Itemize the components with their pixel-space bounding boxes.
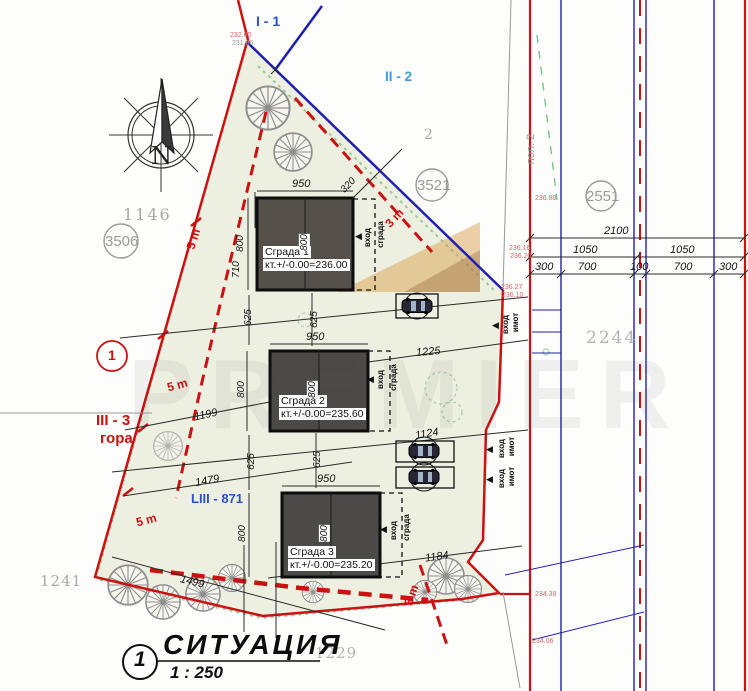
entrance-label-sgrada-b3: сграда bbox=[402, 514, 411, 541]
building-3-elevation: кт.+/-0.00=235.20 bbox=[288, 559, 375, 571]
entrance-label-sgrada-b1: сграда bbox=[376, 221, 385, 248]
spot-elevation: 236.27 bbox=[501, 284, 522, 291]
parcel-number-2551: 2551 bbox=[586, 188, 619, 205]
dim-road-seg-300b: 300 bbox=[719, 261, 737, 273]
spot-elevation: 236.20 bbox=[510, 253, 531, 260]
dim-b1-height-mid: 800 bbox=[299, 234, 310, 251]
dim-b3-width: 950 bbox=[317, 473, 335, 485]
dim-road-seg-300a: 300 bbox=[535, 261, 553, 273]
parcel-number-1241: 1241 bbox=[40, 572, 82, 590]
watermark-text: PREMIER bbox=[128, 338, 687, 451]
dim-road-1050-right: 1050 bbox=[670, 244, 694, 256]
parcel-number-1146: 1146 bbox=[123, 205, 172, 224]
dim-b3-height-left: 800 bbox=[237, 525, 248, 542]
entrance-label-vhod-g1: вход bbox=[501, 315, 510, 334]
north-letter: N bbox=[151, 142, 172, 170]
spot-elevation: 234.38 bbox=[535, 591, 556, 598]
spot-elevation: 231.86 bbox=[232, 40, 253, 47]
parcel-number-2: 2 bbox=[424, 127, 433, 143]
entrance-label-vhod-g3: вход bbox=[497, 469, 506, 488]
entrance-label-imot-g1: имот bbox=[511, 313, 520, 332]
car-icon bbox=[402, 298, 432, 315]
spot-elevation: 232.60 bbox=[230, 32, 251, 39]
entrance-arrow-icon: ◀ bbox=[486, 475, 493, 485]
dim-road-total: 2100 bbox=[604, 225, 628, 237]
zone-label-liii871: LIII - 871 bbox=[191, 491, 243, 506]
street-label-pol2: пол. 2 bbox=[525, 134, 537, 164]
spot-elevation: 234.06 bbox=[532, 638, 553, 645]
dim-gap12-left: 625 bbox=[243, 309, 254, 326]
entrance-arrow-icon: ◀ bbox=[492, 321, 499, 331]
spot-elevation: 236.88 bbox=[535, 195, 556, 202]
dim-road-seg-100: 100 bbox=[630, 261, 648, 273]
dim-b3-height-mid: 800 bbox=[319, 525, 330, 542]
dim-road-seg-700b: 700 bbox=[674, 261, 692, 273]
zone-label-iii3: III - 3 bbox=[96, 412, 130, 429]
dim-b1-width: 950 bbox=[292, 178, 310, 190]
entrance-arrow-icon: ◀ bbox=[380, 525, 387, 535]
site-plan-canvas: PREMIER I - 1 II - 2 III - 3 гора LIII -… bbox=[0, 0, 748, 691]
entrance-label-vhod-b3: вход bbox=[389, 521, 398, 540]
dim-road-seg-700a: 700 bbox=[578, 261, 596, 273]
dim-b1-710: 710 bbox=[231, 261, 242, 278]
spot-elevation: 236.16 bbox=[509, 245, 530, 252]
drawing-scale: 1 : 250 bbox=[170, 663, 223, 683]
dim-gap12-mid: 625 bbox=[309, 311, 320, 328]
dim-gap23-mid: 625 bbox=[312, 451, 323, 468]
drawing-title: СИТУАЦИЯ bbox=[163, 629, 343, 661]
car-icon bbox=[409, 469, 439, 486]
entrance-label-imot-g3: имот bbox=[507, 467, 516, 486]
zone-label-ii2: II - 2 bbox=[385, 69, 412, 84]
parcel-number-3521: 3521 bbox=[417, 177, 450, 194]
spot-elevation: 236.10 bbox=[502, 292, 523, 299]
compass-rose-icon bbox=[109, 78, 213, 192]
dim-b1-height-left: 800 bbox=[235, 235, 246, 252]
zone-label-i1: I - 1 bbox=[256, 13, 280, 29]
dim-gap23-left: 625 bbox=[246, 453, 257, 470]
building-3-name: Сграда 3 bbox=[288, 546, 336, 558]
parcel-number-3506: 3506 bbox=[105, 233, 138, 250]
dim-road-1050-left: 1050 bbox=[573, 244, 597, 256]
entrance-label-vhod-b1: вход bbox=[363, 228, 372, 247]
title-drawing-number: 1 bbox=[134, 648, 146, 672]
site-number: 1 bbox=[108, 347, 116, 363]
building-1-elevation: кт.+/-0.00=236.00 bbox=[263, 259, 350, 271]
entrance-arrow-icon: ◀ bbox=[355, 232, 362, 242]
